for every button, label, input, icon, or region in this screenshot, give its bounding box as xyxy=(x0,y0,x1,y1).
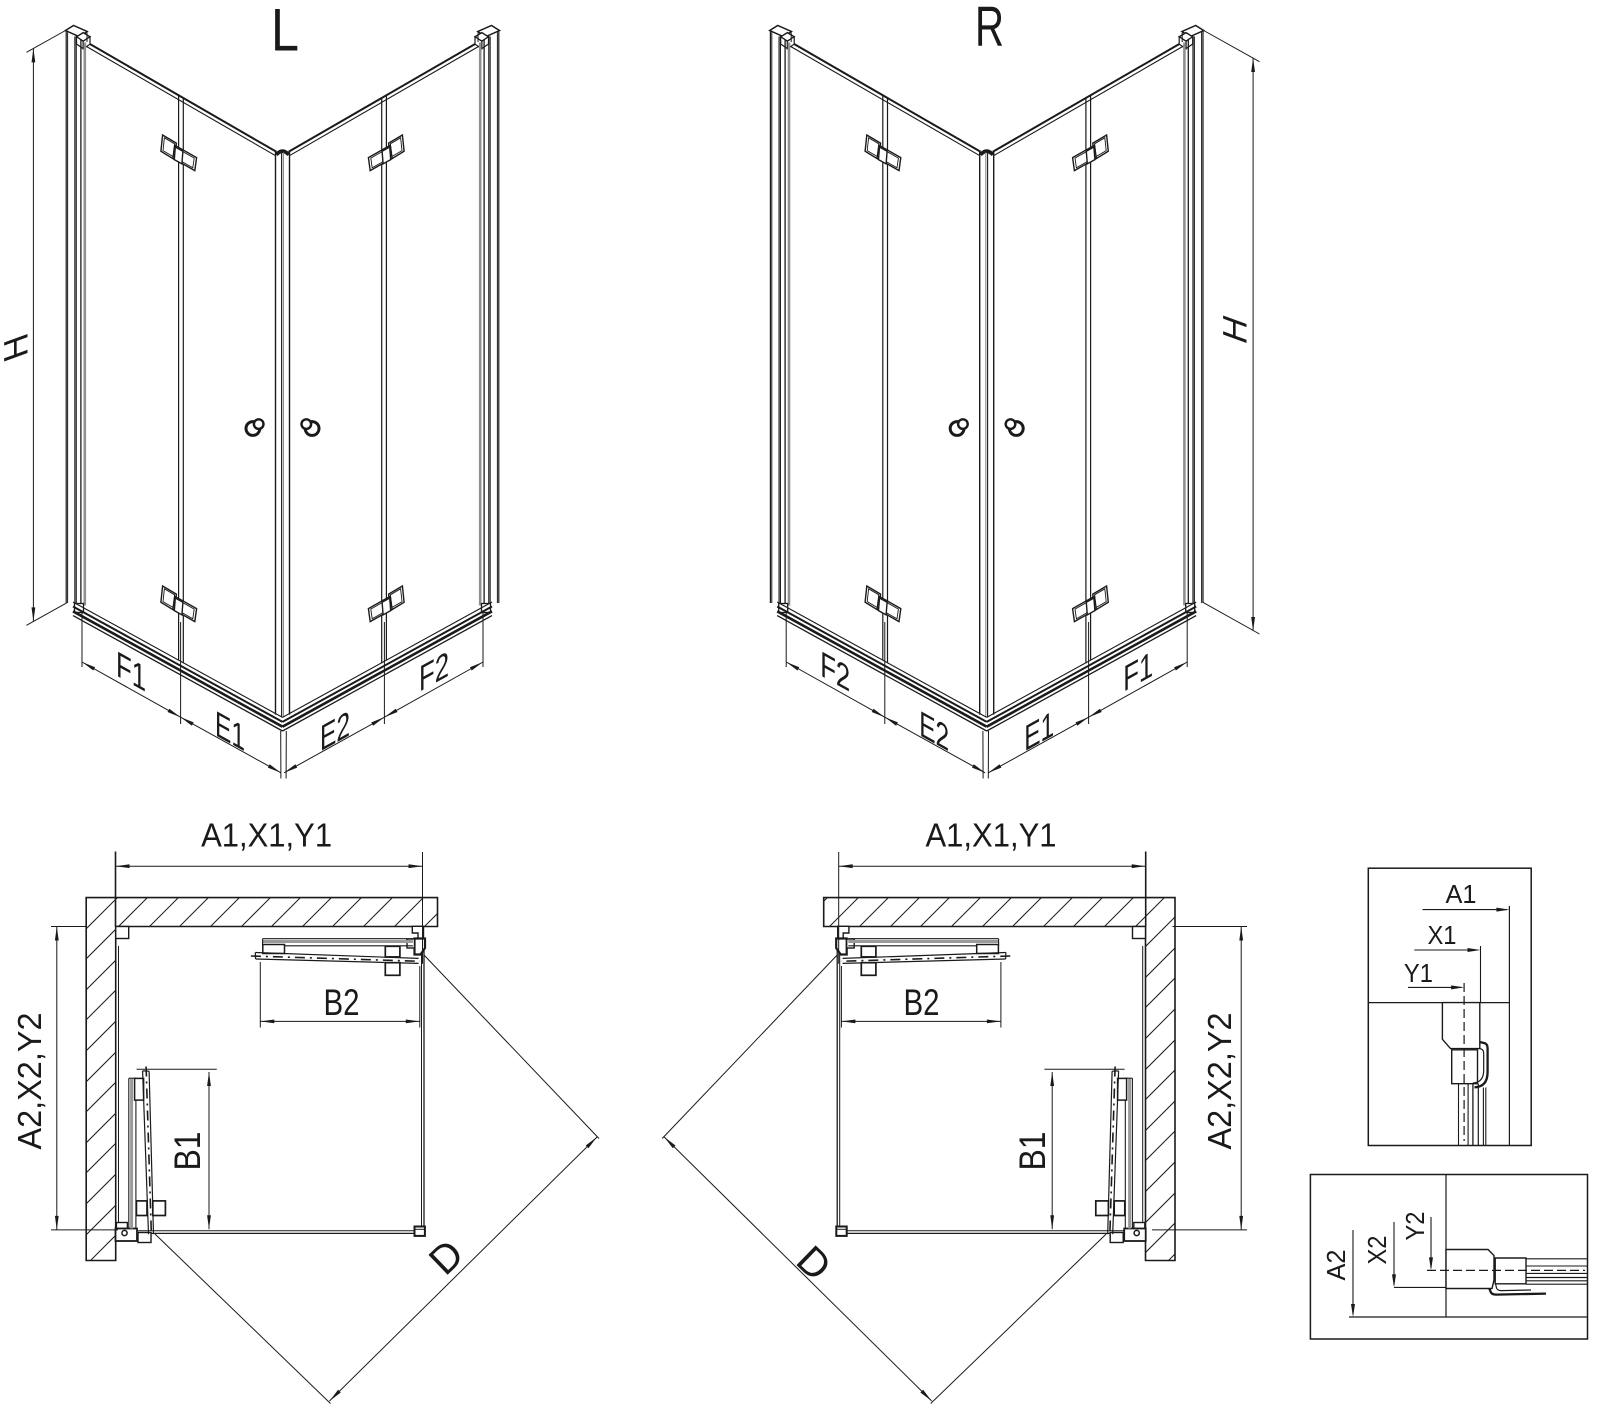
svg-text:L: L xyxy=(271,0,299,64)
svg-text:R: R xyxy=(975,0,1004,59)
svg-text:A2,X2,Y2: A2,X2,Y2 xyxy=(1201,1013,1238,1150)
svg-text:Y1: Y1 xyxy=(1404,958,1433,988)
svg-text:A1,X1,Y1: A1,X1,Y1 xyxy=(201,817,332,854)
svg-text:A2,X2,Y2: A2,X2,Y2 xyxy=(11,1013,48,1150)
svg-text:Y2: Y2 xyxy=(1400,1212,1430,1241)
svg-text:X2: X2 xyxy=(1362,1236,1392,1265)
svg-text:X1: X1 xyxy=(1428,920,1457,950)
svg-text:B1: B1 xyxy=(167,1132,208,1171)
svg-text:A1: A1 xyxy=(1446,879,1477,909)
svg-text:A2: A2 xyxy=(1321,1250,1351,1281)
svg-text:B2: B2 xyxy=(324,982,360,1023)
svg-text:B2: B2 xyxy=(904,982,940,1023)
svg-text:B1: B1 xyxy=(1012,1132,1053,1171)
svg-text:A1,X1,Y1: A1,X1,Y1 xyxy=(926,817,1057,854)
